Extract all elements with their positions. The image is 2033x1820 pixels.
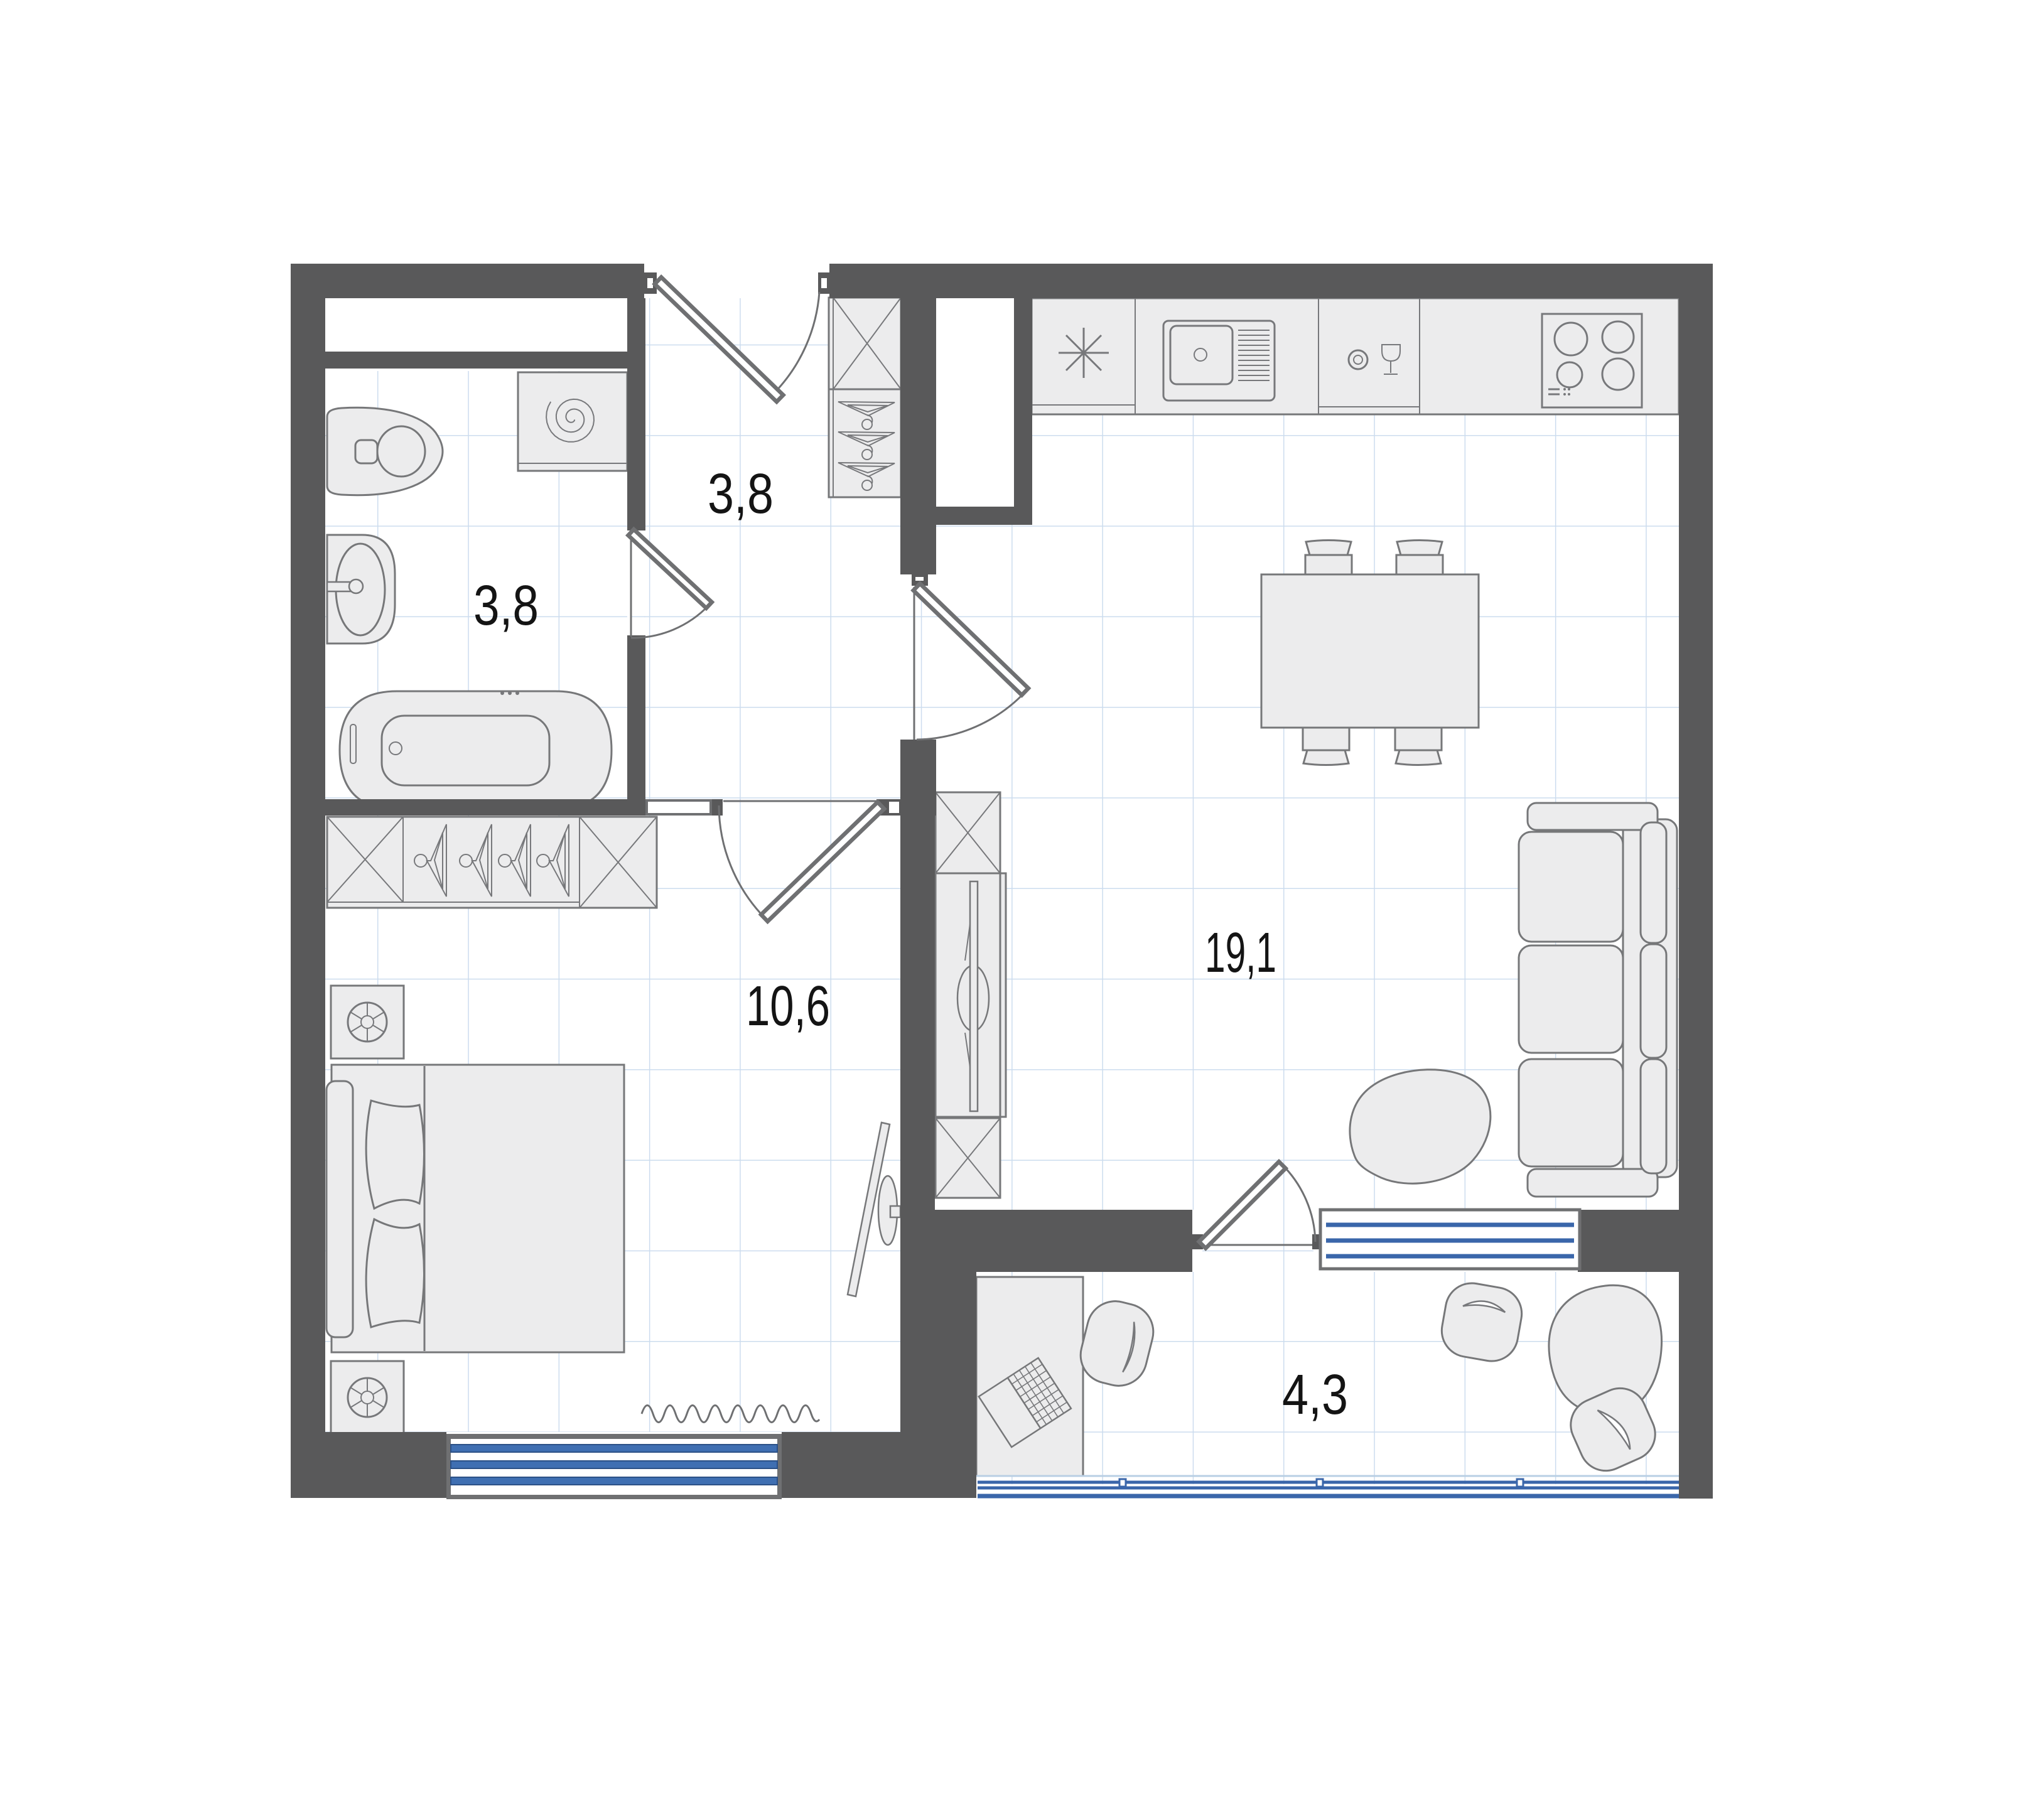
svg-text:3,8: 3,8 [708,463,774,525]
svg-text:10,6: 10,6 [746,975,830,1038]
svg-text:4,3: 4,3 [1282,1364,1348,1426]
svg-text:3,8: 3,8 [473,574,539,637]
svg-text:19,1: 19,1 [1205,922,1276,984]
